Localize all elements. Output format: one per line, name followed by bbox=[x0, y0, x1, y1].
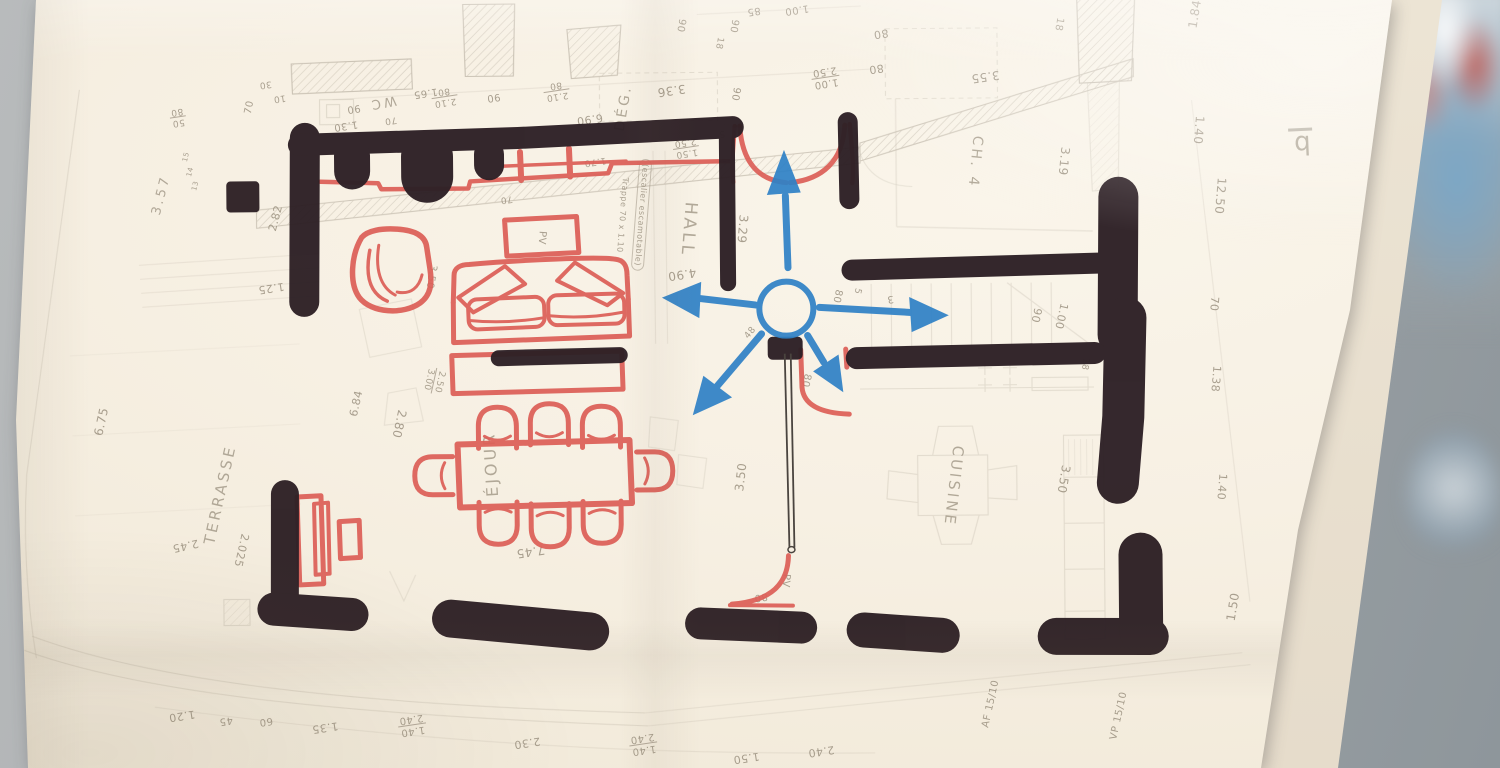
circulation-hub-circle bbox=[759, 281, 813, 335]
arrow-down-right bbox=[808, 335, 842, 390]
sideboard bbox=[297, 495, 361, 585]
wall-segment bbox=[284, 494, 286, 599]
wall-segment bbox=[303, 138, 306, 302]
sofa-pillow-right bbox=[557, 262, 623, 306]
wall-pillar bbox=[226, 181, 259, 212]
red-furniture-markup bbox=[294, 124, 857, 610]
wall-segment bbox=[727, 132, 728, 283]
sofa-cushion bbox=[468, 296, 545, 329]
door-leaf-line bbox=[785, 354, 795, 553]
photo-of-floor-plan: 3.5770301050801514132.82WC1.65901.30702.… bbox=[0, 0, 1500, 768]
plan-paper-sheet: 3.5770301050801514132.82WC1.65901.30702.… bbox=[0, 0, 1500, 768]
arrow-down-left bbox=[694, 334, 763, 414]
dining-chairs bbox=[414, 403, 673, 548]
wall-segment bbox=[852, 263, 1106, 270]
arrow-right bbox=[819, 298, 946, 331]
bottom-door-swing bbox=[730, 556, 793, 607]
floor-plan: 3.5770301050801514132.82WC1.65901.30702.… bbox=[0, 0, 1500, 768]
wall-segment bbox=[848, 122, 850, 199]
wall-segment bbox=[1141, 555, 1142, 631]
wall-segment bbox=[274, 608, 352, 615]
wall-column bbox=[1116, 318, 1126, 483]
armchair bbox=[352, 229, 431, 312]
blue-circulation-annotation bbox=[663, 151, 947, 413]
wall-segment bbox=[864, 629, 942, 636]
small-cabinet bbox=[339, 520, 360, 558]
pv-box bbox=[505, 216, 579, 256]
marker-ink-drawing bbox=[0, 0, 1500, 768]
marker-walls bbox=[226, 120, 1150, 645]
paper-wrap: 3.5770301050801514132.82WC1.65901.30702.… bbox=[0, 0, 1500, 768]
wall-segment bbox=[499, 355, 620, 358]
wall-segment bbox=[701, 623, 801, 629]
sofa bbox=[453, 258, 630, 343]
arrow-up bbox=[768, 153, 800, 268]
wall-segment bbox=[857, 353, 1095, 358]
wall-segment bbox=[451, 617, 590, 632]
dining-table bbox=[457, 440, 632, 508]
arrow-left bbox=[664, 283, 755, 317]
